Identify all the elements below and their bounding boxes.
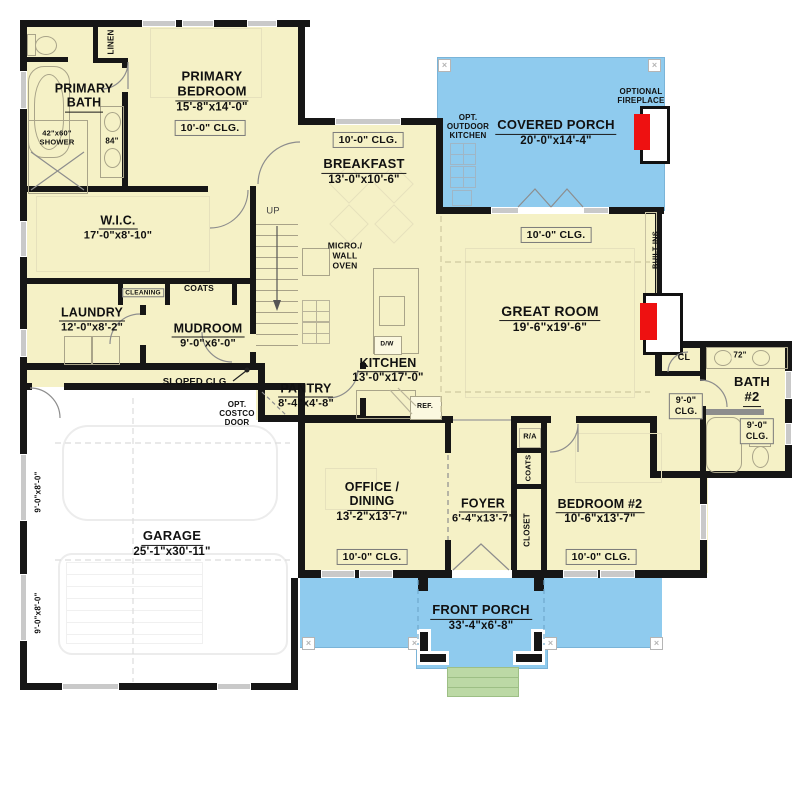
label-line: CLG.: [675, 406, 697, 417]
window: [492, 208, 518, 213]
wall: [93, 20, 98, 63]
label-line: OPT.: [219, 400, 254, 409]
window: [786, 424, 791, 444]
room-name: BEDROOM: [175, 84, 248, 101]
outdoor-kitchen-label: OPT. OUTDOOR KITCHEN: [447, 113, 489, 141]
outdoor-kitchen-cabinet: [452, 190, 472, 206]
garage-door-dim: 9'-0"x8'-0": [33, 592, 42, 633]
bathtub2: [706, 417, 742, 473]
garage-wall: [118, 683, 218, 690]
window: [248, 21, 276, 26]
room-name: KITCHEN: [358, 356, 419, 372]
garage-door: [21, 455, 26, 520]
wall: [140, 345, 146, 365]
great-room-fireplace-firebox: [640, 303, 657, 340]
shower-label: 42"x60" SHOWER: [40, 129, 75, 146]
counter: [356, 390, 416, 419]
window: [21, 330, 26, 356]
portico-post: [420, 654, 446, 662]
room-dim: 25'-1"x30'-11": [133, 546, 210, 559]
return-air-label: R/A: [523, 433, 537, 442]
micro-wall-oven-label: MICRO./ WALL OVEN: [328, 241, 362, 270]
wall: [511, 484, 547, 489]
window: [21, 222, 26, 256]
portico-post: [516, 654, 542, 662]
refrigerator-label: REF.: [417, 403, 433, 411]
room-name: GREAT ROOM: [499, 303, 600, 321]
room-label-wic: W.I.C. 17'-0"x8'-10": [84, 213, 152, 242]
room-label-pantry: PANTRY 8'-4"x4'-8": [278, 381, 334, 410]
room-dim: 19'-6"x19'-6": [499, 321, 600, 335]
dishwasher-label: D/W: [380, 340, 393, 347]
room-dim: 12'-0"x8'-2": [59, 322, 125, 335]
window: [218, 684, 250, 689]
cabinet: [302, 300, 330, 322]
room-name: MUDROOM: [172, 321, 245, 337]
cleaning-closet-label: CLEANING: [122, 288, 164, 297]
room-name: #2: [743, 390, 762, 407]
front-door-opening: [452, 570, 512, 578]
sink: [752, 350, 770, 366]
toilet-bowl: [35, 36, 57, 55]
wall: [298, 383, 305, 578]
floor-plan: × × × × × ×: [0, 0, 800, 800]
coats-closet-label: COATS: [184, 284, 214, 294]
label-line: 9'-0": [746, 420, 768, 431]
portico-post: [534, 578, 544, 591]
room-name: DINING: [348, 494, 397, 510]
front-steps: [447, 667, 519, 697]
wall: [298, 20, 305, 125]
wall: [258, 363, 265, 422]
wall: [655, 371, 706, 376]
wall: [511, 448, 547, 453]
room-dim: 17'-0"x8'-10": [84, 230, 152, 243]
sloped-ceiling-label: SLOPED CLG.: [163, 378, 230, 389]
room-dim: 6'-4"x13'-7": [452, 513, 514, 526]
vanity-72-label: 72": [731, 350, 748, 359]
porch-column-marker: ×: [302, 637, 315, 650]
room-dim: 33'-4"x6'-8": [430, 620, 532, 633]
window: [601, 571, 634, 577]
room-name: GARAGE: [141, 529, 203, 546]
toilet2-bowl: [752, 446, 769, 468]
label-line: OUTDOOR: [447, 122, 489, 131]
room-label-front-porch: FRONT PORCH 33'-4"x6'-8": [430, 603, 532, 633]
stairs-up-label: UP: [266, 207, 280, 218]
room-label-covered-porch: COVERED PORCH 20'-0"x14'-4": [495, 118, 616, 148]
window: [786, 372, 791, 398]
room-name: W.I.C.: [98, 213, 137, 229]
wall: [576, 416, 657, 423]
room-label-bath2: BATH #2: [734, 375, 770, 407]
garage-wall: [291, 578, 298, 690]
room-dim: 15'-8"x14'-0": [175, 101, 248, 114]
closet-label: CLOSET: [522, 513, 531, 547]
wall: [445, 423, 451, 453]
room-label-garage: GARAGE 25'-1"x30'-11": [133, 529, 210, 559]
ceiling-label: 10'-0" CLG.: [175, 120, 246, 136]
room-label-mudroom: MUDROOM 9'-0"x6'-0": [172, 321, 245, 350]
room-name: LAUNDRY: [59, 305, 125, 321]
room-name: PRIMARY: [175, 69, 248, 84]
label-line: OVEN: [328, 261, 362, 271]
sink: [104, 112, 121, 132]
room-dim: 9'-0"x6'-0": [172, 338, 245, 351]
room-label-great-room: GREAT ROOM 19'-6"x19'-6": [499, 303, 600, 335]
costco-door-label: OPT. COSTCO DOOR: [219, 400, 254, 428]
garage-wall: [20, 683, 63, 690]
room-name: BATH: [65, 96, 104, 112]
ceiling-label: 9'-0" CLG.: [669, 393, 703, 419]
bed2: [575, 433, 662, 483]
label-line: KITCHEN: [447, 132, 489, 141]
room-dim: 13'-2"x13'-7": [336, 511, 407, 524]
kitchen-sink: [379, 296, 405, 326]
window: [63, 684, 118, 689]
outdoor-kitchen-grill: [450, 166, 476, 188]
porch-column-marker: ×: [438, 59, 451, 72]
window: [701, 505, 706, 539]
wall-oven: [302, 248, 330, 276]
garage-door-dim: 9'-0"x8'-0": [33, 471, 42, 512]
outdoor-kitchen-grill: [450, 143, 476, 165]
wall: [541, 416, 547, 573]
label-line: COSTCO: [219, 409, 254, 418]
wall: [445, 540, 451, 572]
staircase: [256, 214, 298, 356]
room-label-bedroom2: BEDROOM #2 10'-6"x13'-7": [556, 497, 645, 527]
room-dim: 8'-4"x4'-8": [278, 398, 334, 411]
wall: [511, 416, 517, 573]
room-name: COVERED PORCH: [495, 118, 616, 135]
room-label-laundry: LAUNDRY 12'-0"x8'-2": [59, 305, 125, 334]
label-line: FIREPLACE: [617, 96, 664, 105]
window: [183, 21, 213, 26]
label-line: CLG.: [746, 431, 768, 442]
cabinet: [302, 322, 330, 344]
room-name: BEDROOM #2: [556, 497, 645, 513]
wall: [20, 57, 68, 62]
room-name: OFFICE /: [336, 480, 407, 494]
garage-wall: [20, 520, 27, 575]
washer: [64, 336, 92, 365]
wall: [140, 305, 146, 315]
sink: [104, 148, 121, 168]
room-label-primary-bedroom: PRIMARY BEDROOM 15'-8"x14'-0": [175, 69, 248, 114]
ceiling-label: 10'-0" CLG.: [566, 549, 637, 565]
room-dim: 20'-0"x14'-4": [495, 135, 616, 148]
label-line: DOOR: [219, 419, 254, 428]
room-name: BATH: [734, 375, 770, 390]
window: [336, 119, 400, 124]
window: [564, 571, 597, 577]
room-label-primary-bath: PRIMARY BATH: [45, 82, 123, 113]
room-label-office-dining: OFFICE / DINING 13'-2"x13'-7": [336, 480, 407, 524]
window: [322, 571, 354, 577]
room-label-foyer: FOYER 6'-4"x13'-7": [452, 496, 514, 525]
garage-wall: [20, 383, 27, 455]
room-dim: 13'-0"x10'-6": [321, 174, 406, 187]
label-line: OPT.: [447, 113, 489, 122]
dryer: [92, 336, 120, 365]
room-dim: 13'-0"x17'-0": [352, 373, 423, 386]
room-name: PANTRY: [278, 381, 333, 397]
window: [21, 72, 26, 108]
coats-foyer-label: COATS: [525, 455, 534, 482]
wall: [20, 278, 250, 284]
optional-fireplace-label: OPTIONAL FIREPLACE: [617, 87, 664, 105]
window: [360, 571, 392, 577]
window: [143, 21, 175, 26]
truck-bed: [66, 562, 203, 644]
wall: [436, 125, 443, 214]
room-name: BREAKFAST: [321, 157, 406, 174]
vanity-84-label: 84": [105, 136, 118, 145]
portico-post: [418, 578, 428, 591]
wall: [165, 278, 170, 305]
room-name: FRONT PORCH: [430, 603, 532, 620]
ceiling-label: 10'-0" CLG.: [521, 227, 592, 243]
porch-fireplace-firebox: [634, 114, 650, 150]
wall: [232, 278, 237, 305]
label-line: 9'-0": [675, 395, 697, 406]
ceiling-label: 9'-0" CLG.: [740, 418, 774, 444]
closet-cl-label: CL: [678, 352, 690, 362]
room-name: PRIMARY: [45, 82, 123, 96]
car-outline: [62, 425, 278, 521]
ceiling-label: 10'-0" CLG.: [333, 132, 404, 148]
room-dim: 10'-6"x13'-7": [556, 514, 645, 527]
ceiling-label: 10'-0" CLG.: [337, 549, 408, 565]
built-ins-label: BUILT-INS: [652, 231, 661, 269]
wall: [122, 58, 128, 68]
bath2-counter: [706, 409, 764, 415]
porch-column-marker: ×: [648, 59, 661, 72]
garage-door: [21, 575, 26, 640]
room-name: FOYER: [459, 496, 507, 512]
window: [584, 208, 608, 213]
porch-column-marker: ×: [544, 637, 557, 650]
french-door-opening: [518, 207, 584, 214]
shower-text: SHOWER: [40, 138, 75, 147]
linen-label: LINEN: [106, 30, 115, 55]
room-label-kitchen: KITCHEN 13'-0"x17'-0": [352, 356, 423, 386]
room-label-breakfast: BREAKFAST 13'-0"x10'-6": [321, 157, 406, 187]
sink: [714, 350, 732, 366]
label-line: OPTIONAL: [617, 87, 664, 96]
porch-column-marker: ×: [650, 637, 663, 650]
